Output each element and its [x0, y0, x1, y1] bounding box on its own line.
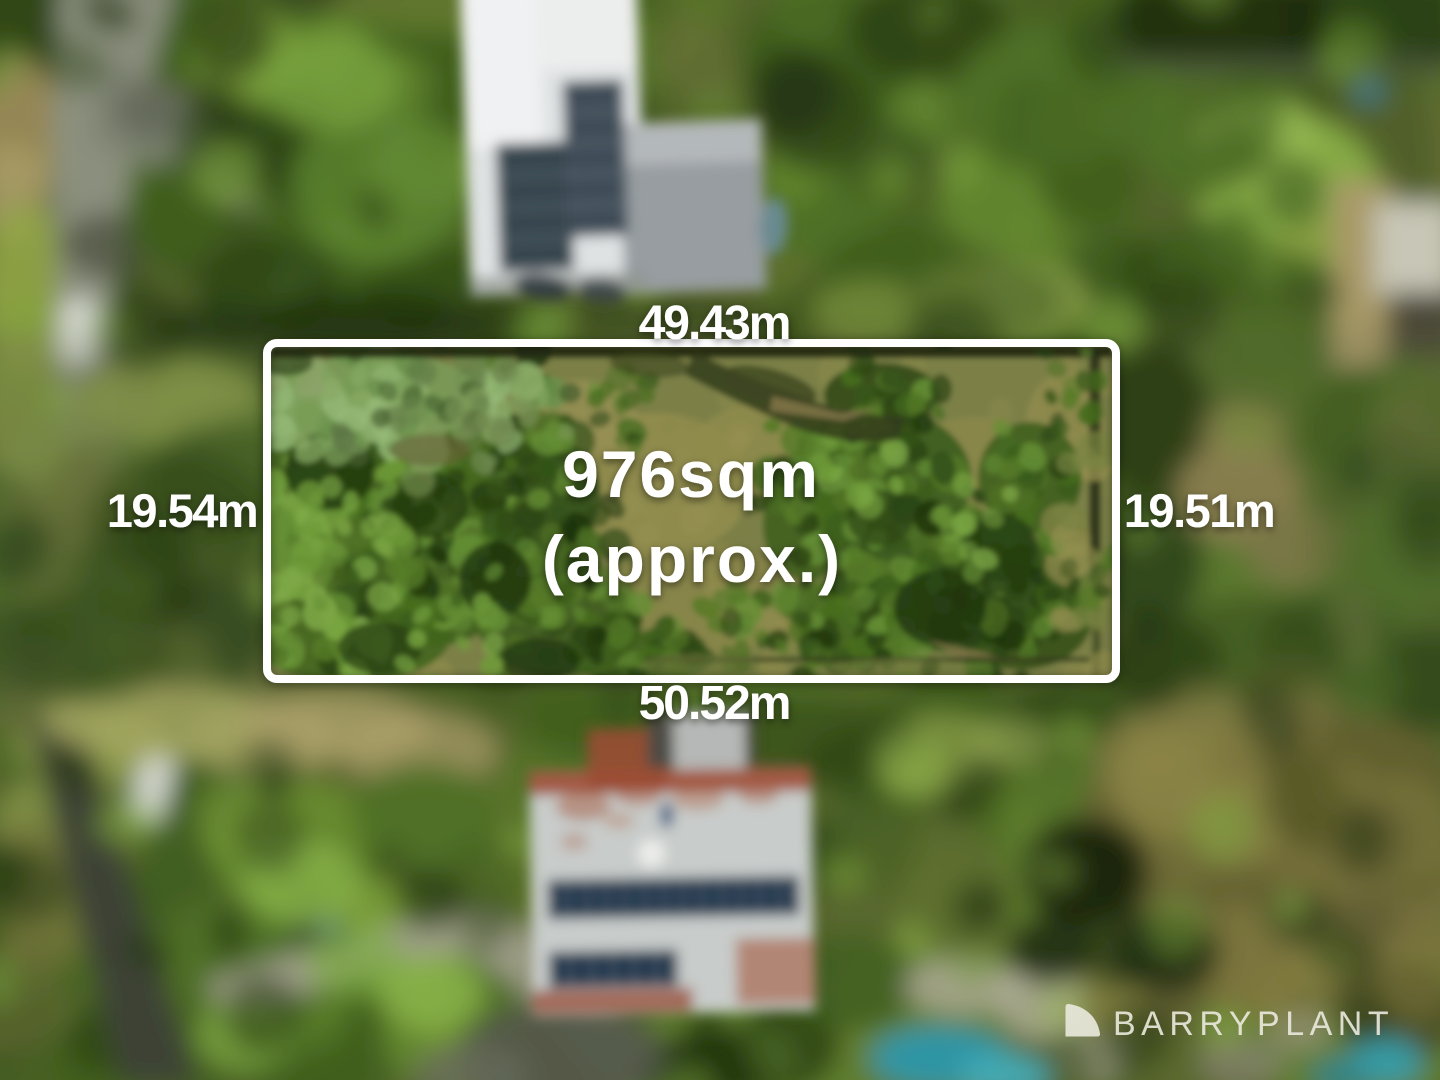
- svg-text:50.52m: 50.52m: [639, 677, 790, 730]
- svg-text:(approx.): (approx.): [542, 522, 842, 596]
- svg-text:19.51m: 19.51m: [1124, 484, 1274, 537]
- svg-text:19.54m: 19.54m: [107, 484, 257, 537]
- svg-text:49.43m: 49.43m: [639, 297, 790, 350]
- svg-text:976sqm: 976sqm: [562, 437, 820, 511]
- svg-text:BARRYPLANT: BARRYPLANT: [1113, 1005, 1394, 1043]
